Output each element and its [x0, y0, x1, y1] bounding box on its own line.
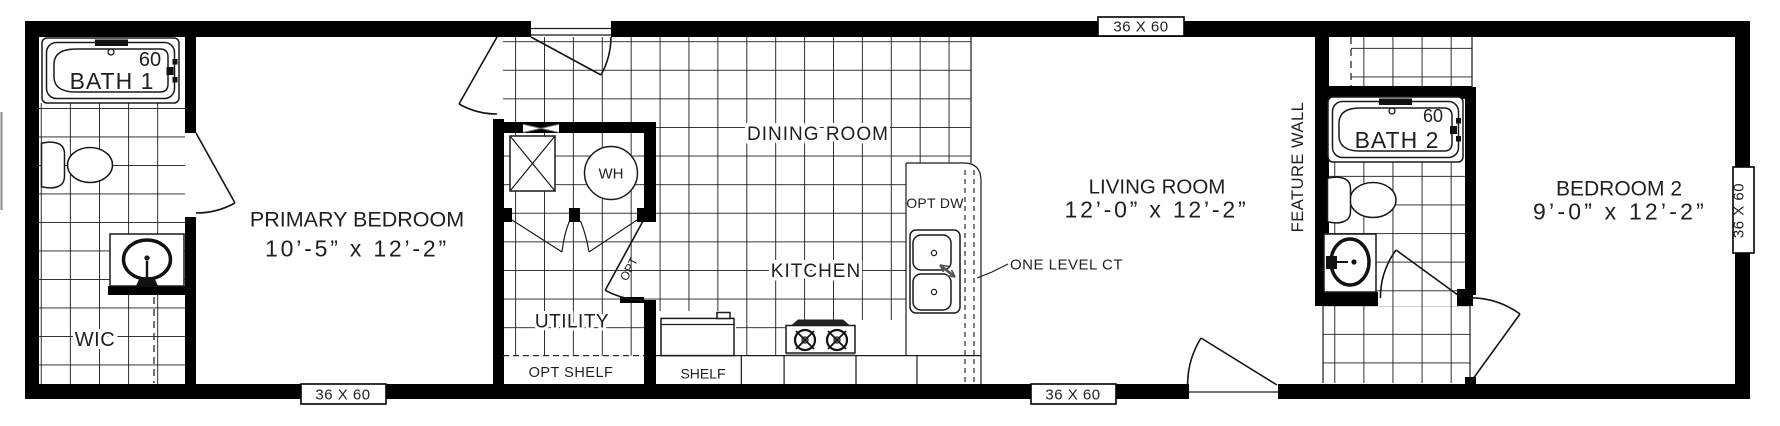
svg-text:36 X 60: 36 X 60	[1113, 19, 1168, 36]
svg-text:WIC: WIC	[75, 329, 115, 351]
svg-text:60: 60	[1423, 106, 1443, 126]
svg-text:BEDROOM 2: BEDROOM 2	[1556, 178, 1682, 201]
svg-text:PRIMARY BEDROOM: PRIMARY BEDROOM	[250, 208, 464, 232]
svg-text:10’-5” x 12’-2”: 10’-5” x 12’-2”	[265, 236, 449, 262]
svg-text:DINING ROOM: DINING ROOM	[747, 124, 889, 145]
svg-text:SHELF: SHELF	[680, 366, 725, 382]
svg-text:BATH 1: BATH 1	[70, 68, 155, 94]
svg-text:BATH 2: BATH 2	[1355, 127, 1440, 153]
svg-text:LIVING ROOM: LIVING ROOM	[1089, 176, 1226, 199]
svg-text:UTILITY: UTILITY	[535, 312, 609, 333]
svg-text:36 X 60: 36 X 60	[1731, 183, 1748, 238]
svg-text:9’-0” x 12’-2”: 9’-0” x 12’-2”	[1533, 199, 1707, 225]
svg-text:12’-0” x 12’-2”: 12’-0” x 12’-2”	[1065, 197, 1249, 223]
svg-text:OPT DW: OPT DW	[906, 195, 964, 211]
svg-text:FEATURE WALL: FEATURE WALL	[1289, 102, 1307, 233]
svg-text:OPT SHELF: OPT SHELF	[529, 365, 614, 381]
svg-text:36 X 60: 36 X 60	[315, 387, 370, 404]
svg-text:KITCHEN: KITCHEN	[771, 261, 861, 282]
svg-text:WH: WH	[599, 166, 624, 183]
svg-text:ONE LEVEL CT: ONE LEVEL CT	[1010, 257, 1123, 274]
svg-text:36 X 60: 36 X 60	[1045, 387, 1100, 404]
